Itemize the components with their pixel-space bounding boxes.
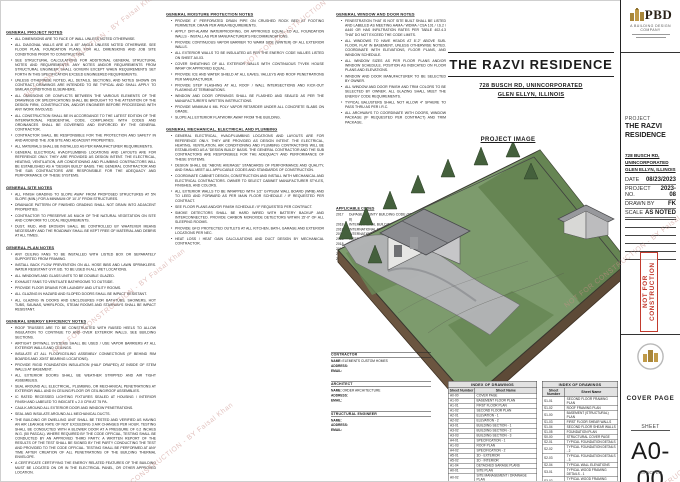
sheet-number-cell: S1-00 bbox=[542, 411, 565, 420]
project-address-line1: 728 BUSCH RD, UNINCORPORATED bbox=[448, 82, 614, 91]
titleblock-field: PROJECT NO.2023-08 bbox=[625, 185, 676, 200]
note-bullet: ANY CEILING FANS TO BE INSTALLED WITH LI… bbox=[11, 252, 156, 261]
note-bullet: IC RATED RECESSED LIGHTING FIXTURES SEAL… bbox=[11, 395, 156, 404]
sheet-name-cell: FIRST FLOOR SHEAR WALLS bbox=[565, 420, 618, 425]
column-header: Sheet Name bbox=[565, 388, 618, 397]
note-bullet: COORDINATE CABINET DESIGN, CONSTRUCTION … bbox=[171, 174, 324, 188]
titleblock-project-name: THE RAZVI RESIDENCE bbox=[625, 122, 676, 141]
contact-heading: STRUCTURAL ENGINEER bbox=[331, 411, 431, 417]
note-bullet: INSULATE AT ALL FLOOR/CEILING ASSEMBLY C… bbox=[11, 352, 156, 361]
project-image-label: PROJECT IMAGE bbox=[448, 137, 568, 143]
note-bullet: ALL WINDOWS AND GLASS UNITS TO BE DOUBLE… bbox=[11, 274, 156, 279]
note-bullet: ALL FINISH GRADING TO SLOPE AWAY FROM PR… bbox=[11, 192, 156, 201]
note-bullet: DUST, MUD, AND EROSION SHALL BE CONTROLL… bbox=[11, 224, 156, 238]
note-bullet: SEAL AROUND ALL ELECTRICAL, PLUMBING, OR… bbox=[11, 384, 156, 393]
pbd-logo: PBD A BUILDING DESIGN COMPANY bbox=[621, 6, 680, 40]
note-bullet: PROVIDE CONTINUOUS VAPOR BARRIER TO WARM… bbox=[171, 40, 324, 49]
note-bullet: PROVIDE MINIMUM 6 MIL POLY VAPOR RETARDE… bbox=[171, 105, 324, 114]
company-seal bbox=[637, 343, 664, 375]
note-bullet: ALL WINDOW AND DOOR FINISH AND TRIM COLO… bbox=[341, 85, 446, 99]
notes-list: ALL DIMENSIONS ARE TO FACE OF WALL UNLES… bbox=[6, 37, 156, 178]
sheet-title: COVER PAGE bbox=[621, 395, 680, 402]
notes-list: ALL FINISH GRADING TO SLOPE AWAY FROM PR… bbox=[6, 192, 156, 238]
note-bullet: ALL WINDOW SIZES AS PER FLOOR PLANS AND/… bbox=[341, 59, 446, 73]
contacts-block: CONTRACTORNAME: ELEMENTS CUSTOM HOMESADD… bbox=[331, 352, 431, 480]
contact-field-label: EMAIL: bbox=[331, 369, 342, 373]
sheet-number-cell: S3-02 bbox=[542, 477, 565, 481]
cover-sheet: GENERAL PROJECT NOTESALL DIMENSIONS ARE … bbox=[0, 0, 680, 482]
divider bbox=[621, 334, 680, 335]
sheet-number-cell: A0-02 bbox=[448, 473, 475, 481]
note-bullet: PROVIDE 4" PERFORATED DRAIN PIPE ON CRUS… bbox=[171, 19, 324, 28]
column-header: Sheet Number bbox=[542, 388, 565, 397]
title-rule-bottom bbox=[448, 76, 614, 77]
table-header-row: Sheet NumberSheet Name bbox=[542, 388, 618, 397]
note-bullet: ALL OMISSIONS OR CONFLICTS BETWEEN THE V… bbox=[11, 94, 156, 112]
notes-section-heading: GENERAL SITE NOTES bbox=[6, 185, 156, 190]
notes-section-heading: GENERAL ENERGY EFFICIENCY NOTES bbox=[6, 319, 156, 324]
notes-section-heading: GENERAL PLAN NOTES bbox=[6, 245, 156, 250]
sheet-number: A0-00 bbox=[621, 438, 680, 482]
field-label: PROJECT NO. bbox=[625, 186, 657, 198]
sheet-name-cell: SECOND FLOOR SHEAR WALLS bbox=[565, 425, 618, 430]
sheet-name-cell: SECOND FLOOR FRAMING PLAN bbox=[565, 397, 618, 406]
note-bullet: UNLESS OTHERWISE NOTED, ALL DETAILS, SEC… bbox=[11, 78, 156, 92]
sheet-name-cell: BASEMENT (STRUCTURAL) PLAN bbox=[565, 411, 618, 420]
divider bbox=[621, 52, 680, 53]
note-bullet: GENERAL ELECTRICAL, HVAC/PLUMBING LOCATI… bbox=[171, 134, 324, 162]
notes-section: GENERAL ENERGY EFFICIENCY NOTESROOF TRUS… bbox=[6, 319, 156, 475]
field-label: DRAWN BY bbox=[625, 201, 654, 207]
note-bullet: SEAL AND INSULATE AROUND ALL MECHANICAL … bbox=[11, 412, 156, 417]
sheet-number-cell: S3-01 bbox=[542, 468, 565, 477]
notes-section: GENERAL MOISTURE PROTECTION NOTESPROVIDE… bbox=[166, 12, 324, 120]
note-bullet: ALL WINDOWS TO HAVE HEADS AT 8'-2" ABOVE… bbox=[341, 39, 446, 57]
note-bullet: ALL GLAZING IN HAZARD AND SLOPED DOORS S… bbox=[11, 292, 156, 297]
sheet-number-cell: S1-01 bbox=[542, 397, 565, 406]
seal-icon bbox=[637, 343, 664, 370]
notes-column-2: GENERAL MOISTURE PROTECTION NOTESPROVIDE… bbox=[166, 12, 324, 478]
notes-column-1: GENERAL PROJECT NOTESALL DIMENSIONS ARE … bbox=[6, 30, 156, 480]
notes-section-heading: GENERAL WINDOW AND DOOR NOTES bbox=[336, 12, 446, 17]
contact-field-label: NAME: bbox=[331, 360, 343, 364]
titleblock-field: DRAWN BYFK bbox=[625, 200, 676, 209]
notes-section: GENERAL PLAN NOTESANY CEILING FANS TO BE… bbox=[6, 245, 156, 312]
note-bullet: FENESTRATION THAT IS NOT SITE BUILT SHAL… bbox=[341, 19, 446, 37]
note-bullet: ROOF TRUSSES ARE TO BE CONSTRUCTED WITH … bbox=[11, 326, 156, 340]
note-bullet: WINDOW AND DOOR OPENINGS SHALL BE FLASHE… bbox=[171, 94, 324, 103]
note-bullet: ALL MATERIALS SHALL BE INSTALLED AS PER … bbox=[11, 144, 156, 149]
index-table-structural: INDEX OF DRAWINGSSheet NumberSheet NameS… bbox=[542, 381, 618, 481]
notes-section-heading: GENERAL MECHANICAL, ELECTRICAL AND PLUMB… bbox=[166, 127, 324, 132]
sheet-name-cell: TYPICAL WOOD FRAMING DETAILS - 2 bbox=[565, 477, 618, 481]
sheet-name-cell: TYPICAL FOUNDATION DETAILS - 2 bbox=[565, 445, 618, 454]
note-bullet: PROVIDE ICE AND WATER SHIELD AT ALL EAVE… bbox=[171, 73, 324, 82]
pbd-logo-tagline: A BUILDING DESIGN COMPANY bbox=[621, 24, 680, 32]
sheet-number-cell: S2-02 bbox=[542, 445, 565, 454]
field-label: DATE bbox=[625, 177, 639, 183]
table-row: S3-02TYPICAL WOOD FRAMING DETAILS - 2 bbox=[542, 477, 618, 481]
note-bullet: PROVIDE RIGID FOUNDATION INSULATION (HAL… bbox=[11, 363, 156, 372]
sheet-label-row: SHEET bbox=[631, 424, 670, 431]
note-bullet: AIRTIGHT DRYWALL SYSTEMS SHALL BE USED /… bbox=[11, 341, 156, 350]
contact-field-label: ADDRESS: bbox=[331, 364, 348, 368]
note-bullet: HEAT LOSS / HEAT GAIN CALCULATIONS AND D… bbox=[171, 237, 324, 246]
index-of-drawings-table: INDEX OF DRAWINGSSheet NumberSheet NameA… bbox=[448, 381, 537, 481]
pbd-building-icon bbox=[629, 8, 645, 21]
notes-section-heading: GENERAL PROJECT NOTES bbox=[6, 30, 156, 35]
note-bullet: PROVIDE STEP FLASHING AT ALL ROOF / WALL… bbox=[171, 83, 324, 92]
logo-info-line bbox=[632, 34, 670, 36]
contact-field-label: ADDRESS: bbox=[331, 424, 348, 428]
field-value: 08/23/2023 bbox=[646, 177, 676, 183]
note-bullet: ALL CONSTRUCTION SHALL BE IN ACCORDANCE … bbox=[11, 114, 156, 132]
contact-block: STRUCTURAL ENGINEERNAME: ADDRESS: EMAIL: bbox=[331, 411, 431, 433]
pbd-logo-text: PBD bbox=[645, 7, 673, 22]
project-title: THE RAZVI RESIDENCE bbox=[448, 57, 614, 72]
notes-list: PROVIDE 4" PERFORATED DRAIN PIPE ON CRUS… bbox=[166, 19, 324, 120]
contact-heading: ARCHITECT bbox=[331, 382, 431, 388]
note-bullet: APPLY DRY-ALARM WATERPROOFING, OR APPROV… bbox=[171, 30, 324, 39]
title-block: PBD A BUILDING DESIGN COMPANY PROJECT TH… bbox=[620, 0, 680, 482]
note-bullet: ALL DIMENSIONS ARE TO FACE OF WALL UNLES… bbox=[11, 37, 156, 42]
notes-section: GENERAL PROJECT NOTESALL DIMENSIONS ARE … bbox=[6, 30, 156, 178]
notes-section: GENERAL SITE NOTESALL FINISH GRADING TO … bbox=[6, 185, 156, 238]
index-of-drawings-table: INDEX OF DRAWINGSSheet NumberSheet NameS… bbox=[542, 381, 618, 481]
contact-field-label: ADDRESS: bbox=[331, 394, 348, 398]
titleblock-address-line2: GLEN ELLYN, ILLINOIS bbox=[625, 167, 676, 174]
notes-list: GENERAL ELECTRICAL, HVAC/PLUMBING LOCATI… bbox=[166, 134, 324, 246]
field-value: FK bbox=[668, 201, 676, 207]
scale-note: AS NOTED bbox=[631, 470, 670, 475]
note-bullet: ALL ARCHWAYS TO COORDINATE WITH DOORS, W… bbox=[341, 111, 446, 125]
contact-heading: CONTRACTOR bbox=[331, 352, 431, 358]
contact-line: EMAIL: bbox=[331, 369, 431, 374]
note-bullet: DRAINAGE PATTERN OF FINISHED GRADING SHA… bbox=[11, 203, 156, 212]
titleblock-project: PROJECT THE RAZVI RESIDENCE bbox=[625, 116, 676, 141]
note-bullet: PROVIDE FLOOR DRAINS FOR LAUNDRY AND UTI… bbox=[11, 286, 156, 291]
note-bullet: PROVIDE GFCI PROTECTED OUTLETS AT ALL KI… bbox=[171, 226, 324, 235]
notes-list: ANY CEILING FANS TO BE INSTALLED WITH LI… bbox=[6, 252, 156, 312]
table-row: S3-01TYPICAL WOOD FRAMING DETAILS - 1 bbox=[542, 468, 618, 477]
contact-field-label: EMAIL: bbox=[331, 429, 342, 433]
titleblock-field: DATE08/23/2023 bbox=[625, 176, 676, 185]
note-bullet: ALL EXTERIOR WALLS TO BE INSULATED AS PE… bbox=[171, 51, 324, 60]
field-value: 2023-08 bbox=[657, 186, 676, 198]
table-row: S2-03TYPICAL FOUNDATION DETAILS - 3 bbox=[542, 454, 618, 463]
title-rule-top bbox=[448, 52, 614, 53]
notes-section: GENERAL MECHANICAL, ELECTRICAL AND PLUMB… bbox=[166, 127, 324, 246]
note-bullet: SLOPE ALL EXTERIOR FLATWORK AWAY FROM TH… bbox=[171, 116, 324, 121]
sheet-number-cell: S2-03 bbox=[542, 454, 565, 463]
note-bullet: WINDOW AND DOOR MANUFACTURER TO BE SELEC… bbox=[341, 74, 446, 83]
title-banner: THE RAZVI RESIDENCE 728 BUSCH RD, UNINCO… bbox=[448, 52, 614, 101]
note-bullet: CAULK AROUND ALL EXTERIOR DOOR AND WINDO… bbox=[11, 406, 156, 411]
notes-section-heading: GENERAL MOISTURE PROTECTION NOTES bbox=[166, 12, 324, 17]
note-bullet: INSTALL BACK FLOW PREVENTION ON ALL HOSE… bbox=[11, 263, 156, 272]
note-bullet: SEE STRUCTURAL CALCULATIONS FOR ADDITION… bbox=[11, 58, 156, 76]
note-bullet: DESIGN SHALL BE "ABOVE AVERAGE" STANDARD… bbox=[171, 163, 324, 172]
note-bullet: ALL GLAZING IN DOORS AND ENCLOSURES FOR … bbox=[11, 298, 156, 312]
table-row: A0-02SITE MANAGEMENT / DRAINAGE PLAN bbox=[448, 473, 537, 481]
contact-line: EMAIL: bbox=[331, 428, 431, 433]
note-bullet: CONTRACTOR SHALL BE RESPONSIBLE FOR THE … bbox=[11, 134, 156, 143]
contact-block: ARCHITECTNAME: ORDER ARCHITECTUREADDRESS… bbox=[331, 382, 431, 404]
note-bullet: THE BUILDING OR DWELLING UNIT SHALL BE T… bbox=[11, 418, 156, 460]
note-bullet: SEE FLOOR PLANS AND/OR FINISH SCHEDULE /… bbox=[171, 205, 324, 210]
note-bullet: CONTRACTOR TO PRESERVE AS MUCH OF THE NA… bbox=[11, 214, 156, 223]
table-row: S1-01SECOND FLOOR FRAMING PLAN bbox=[542, 397, 618, 406]
contact-field-label: NAME: bbox=[331, 389, 343, 393]
not-for-construction-stamp: NOT FOR CONSTRUCTION bbox=[640, 252, 658, 332]
sheet-name-cell: SITE MANAGEMENT / DRAINAGE PLAN bbox=[475, 473, 537, 481]
sheet-name-cell: TYPICAL FOUNDATION DETAILS bbox=[565, 440, 618, 445]
note-bullet: A CERTIFICATE CERTIFYING THE ENERGY RELA… bbox=[11, 461, 156, 475]
note-bullet: COVER SHEATHING OF ALL EXTERIOR WALLS WI… bbox=[171, 62, 324, 71]
table-row: S1-00BASEMENT (STRUCTURAL) PLAN bbox=[542, 411, 618, 420]
contact-block: CONTRACTORNAME: ELEMENTS CUSTOM HOMESADD… bbox=[331, 352, 431, 374]
sheet-name-cell: TYPICAL WOOD FRAMING DETAILS - 1 bbox=[565, 468, 618, 477]
note-bullet: EXHAUST FANS TO VENTILATE BATHROOMS TO O… bbox=[11, 280, 156, 285]
index-table-architectural: INDEX OF DRAWINGSSheet NumberSheet NameA… bbox=[448, 381, 537, 481]
note-bullet: ALL DIAGONAL WALLS ARE AT A 45° ANGLE UN… bbox=[11, 43, 156, 57]
note-bullet: ALL EXTERIOR DOORS SHALL BE WEATHER STRI… bbox=[11, 374, 156, 383]
contact-line: EMAIL: bbox=[331, 398, 431, 403]
notes-list: FENESTRATION THAT IS NOT SITE BUILT SHAL… bbox=[336, 19, 446, 125]
notes-section: GENERAL WINDOW AND DOOR NOTESFENESTRATIO… bbox=[336, 12, 446, 125]
note-bullet: ALL EXTERIOR WALLS TO BE WRAPPED WITH 1/… bbox=[171, 190, 324, 204]
note-bullet: TYPICAL BALUSTERS SHALL NOT ALLOW 4" SPH… bbox=[341, 100, 446, 109]
contact-field-label: EMAIL: bbox=[331, 399, 342, 403]
project-address-line2: GLEN ELLYN, ILLINOIS bbox=[448, 91, 614, 100]
note-bullet: SMOKE DETECTORS SHALL BE HARD WIRED WITH… bbox=[171, 211, 324, 225]
logo-info-line bbox=[636, 37, 666, 39]
titleblock-address: 728 BUSCH RD, UNINCORPORATED GLEN ELLYN,… bbox=[625, 153, 676, 174]
note-bullet: GENERAL ELECTRICAL HVAC/PLUMBING LOCATIO… bbox=[11, 151, 156, 179]
titleblock-address-line1: 728 BUSCH RD, UNINCORPORATED bbox=[625, 153, 676, 167]
notes-list: ROOF TRUSSES ARE TO BE CONSTRUCTED WITH … bbox=[6, 326, 156, 475]
contact-field-label: NAME: bbox=[331, 419, 342, 423]
table-row: S2-02TYPICAL FOUNDATION DETAILS - 2 bbox=[542, 445, 618, 454]
sheet-name-cell: TYPICAL FOUNDATION DETAILS - 3 bbox=[565, 454, 618, 463]
